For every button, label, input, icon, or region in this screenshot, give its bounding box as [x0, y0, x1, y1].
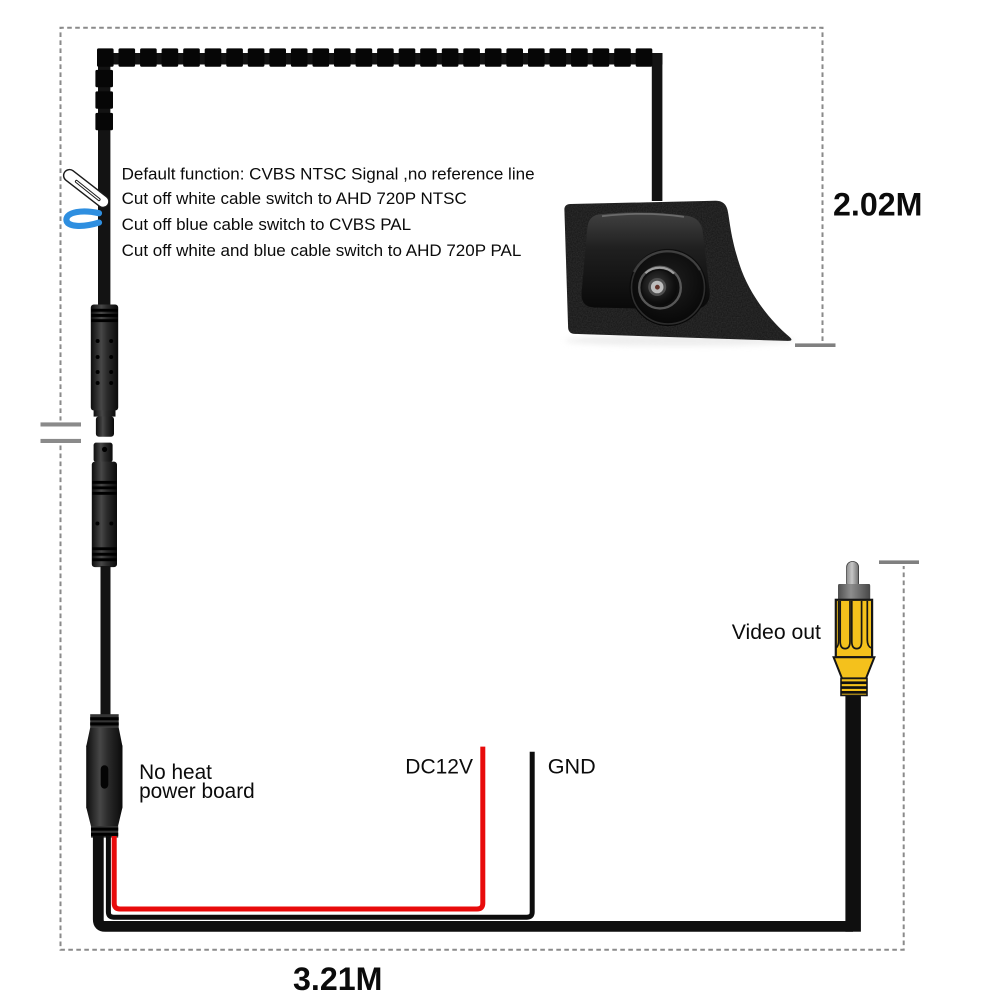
svg-text:Cut off white and blue cable s: Cut off white and blue cable switch to A… — [122, 241, 522, 260]
svg-text:Video out: Video out — [732, 621, 821, 644]
svg-text:GND: GND — [548, 753, 596, 778]
svg-text:power board: power board — [139, 780, 255, 803]
svg-text:3.21M: 3.21M — [293, 961, 382, 997]
svg-text:Cut off white cable switch to: Cut off white cable switch to AHD 720P N… — [122, 189, 467, 208]
svg-text:Default function: CVBS NTSC Si: Default function: CVBS NTSC Signal ,no r… — [122, 165, 535, 184]
svg-text:DC12V: DC12V — [405, 755, 473, 778]
svg-text:2.02M: 2.02M — [833, 187, 922, 223]
svg-text:Cut off blue cable switch to C: Cut off blue cable switch to CVBS PAL — [122, 215, 411, 234]
